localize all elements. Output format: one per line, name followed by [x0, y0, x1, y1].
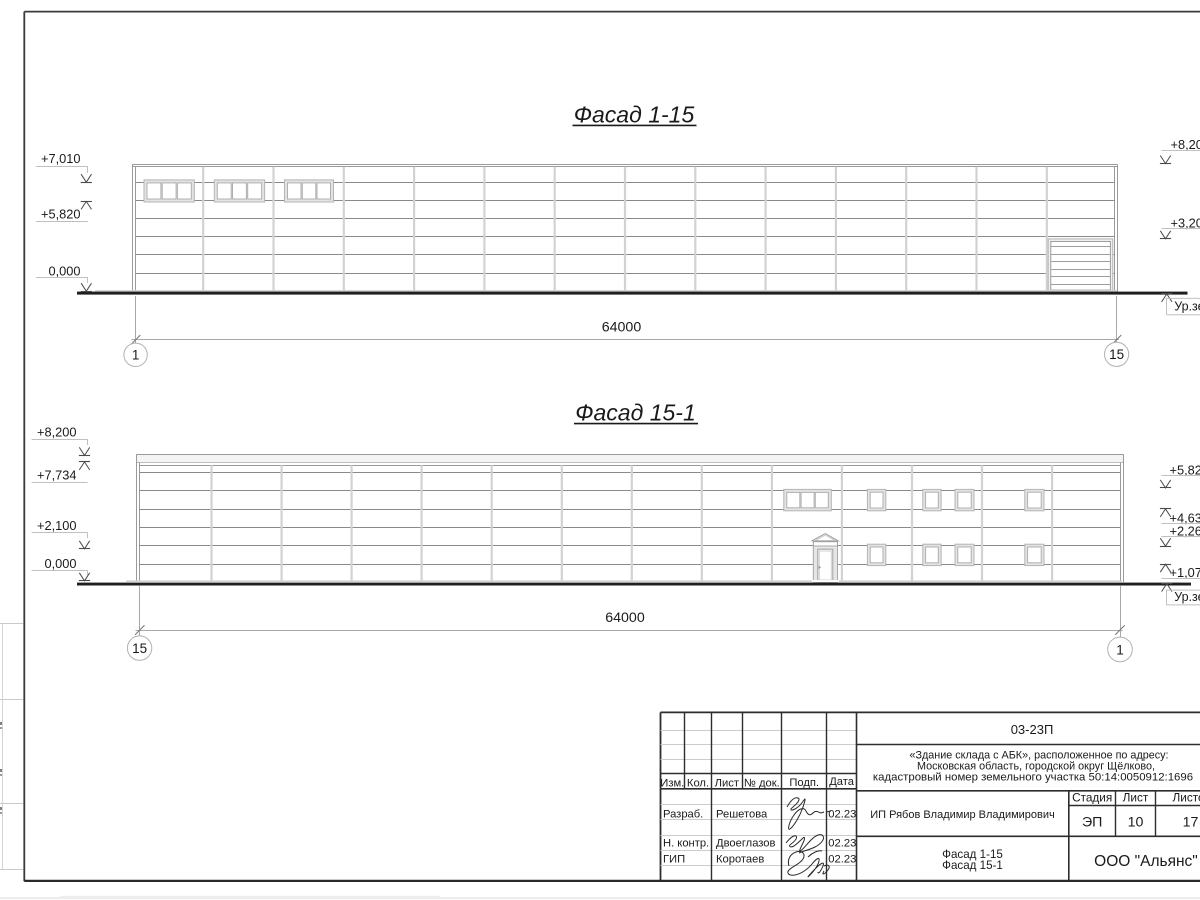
svg-text:15: 15: [1109, 347, 1124, 362]
svg-text:ИП Рябов Владимир Владимирович: ИП Рябов Владимир Владимирович: [870, 809, 1055, 821]
svg-text:1: 1: [1116, 642, 1124, 657]
svg-text:+2,100: +2,100: [37, 518, 77, 533]
svg-text:ООО "Альянс": ООО "Альянс": [1094, 853, 1198, 870]
svg-text:Стадия: Стадия: [1072, 791, 1112, 805]
svg-text:Фасад 1-15: Фасад 1-15: [574, 102, 695, 128]
svg-text:Разраб.: Разраб.: [663, 808, 703, 820]
svg-text:+7,010: +7,010: [41, 151, 81, 166]
svg-text:64000: 64000: [605, 610, 645, 626]
svg-text:Московская область, городской: Московская область, городской округ Щёлк…: [917, 760, 1155, 772]
svg-text:Лист: Лист: [1123, 791, 1149, 805]
svg-text:Коротаев: Коротаев: [716, 853, 764, 865]
svg-text:Фасад 15-1: Фасад 15-1: [575, 400, 696, 426]
svg-text:Н. контр.: Н. контр.: [663, 837, 709, 849]
svg-text:+1,070: +1,070: [1170, 565, 1200, 580]
svg-text:ГИП: ГИП: [663, 853, 685, 865]
svg-text:17: 17: [1183, 814, 1199, 830]
svg-text:Дата: Дата: [829, 776, 855, 788]
svg-text:0,000: 0,000: [44, 556, 76, 571]
svg-text:+8,200: +8,200: [1171, 137, 1200, 152]
svg-text:Кол.: Кол.: [687, 777, 709, 789]
svg-text:Ур.земли: Ур.земли: [1174, 300, 1200, 314]
svg-text:+7,734: +7,734: [37, 467, 77, 482]
svg-text:Фасад 15-1: Фасад 15-1: [942, 859, 1003, 872]
svg-text:03-23П: 03-23П: [1011, 722, 1054, 737]
svg-text:02.23: 02.23: [828, 808, 856, 820]
svg-text:ЭП: ЭП: [1082, 814, 1102, 830]
svg-text:Двоеглазов: Двоеглазов: [716, 837, 776, 849]
svg-text:0,000: 0,000: [48, 263, 80, 278]
svg-text:Листов: Листов: [1173, 791, 1200, 805]
svg-text:+5,820: +5,820: [41, 206, 81, 221]
svg-text:02.23: 02.23: [828, 837, 856, 849]
svg-text:+8,200: +8,200: [37, 425, 77, 440]
svg-text:Лист: Лист: [715, 777, 739, 789]
svg-text:Решетова: Решетова: [716, 808, 768, 820]
svg-text:10: 10: [1128, 814, 1144, 830]
svg-text:64000: 64000: [602, 319, 642, 335]
svg-text:1: 1: [132, 348, 140, 363]
svg-text:кадастровый номер земельного у: кадастровый номер земельного участка 50:…: [873, 772, 1193, 784]
svg-text:Ур.земли: Ур.земли: [1174, 590, 1200, 604]
svg-text:Подп.: Подп.: [789, 777, 819, 789]
svg-text:№ док.: № док.: [744, 777, 780, 789]
svg-text:Изм.: Изм.: [660, 777, 684, 789]
svg-text:15: 15: [132, 641, 147, 656]
svg-text:02.23: 02.23: [828, 854, 856, 866]
